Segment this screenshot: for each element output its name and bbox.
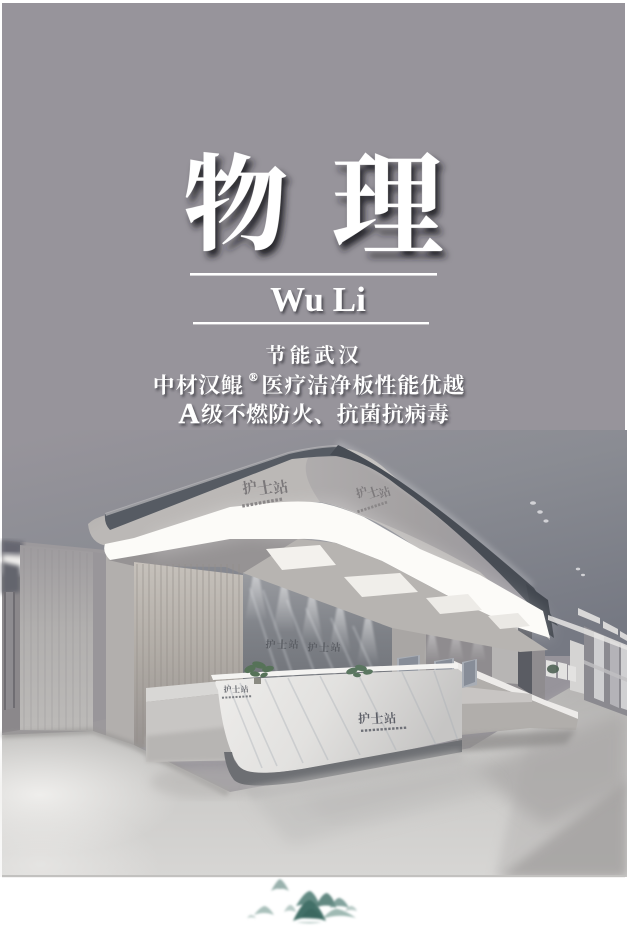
- svg-text:A: A: [179, 398, 200, 430]
- svg-text:Wu Li: Wu Li: [270, 280, 366, 319]
- svg-text:®: ®: [249, 372, 258, 384]
